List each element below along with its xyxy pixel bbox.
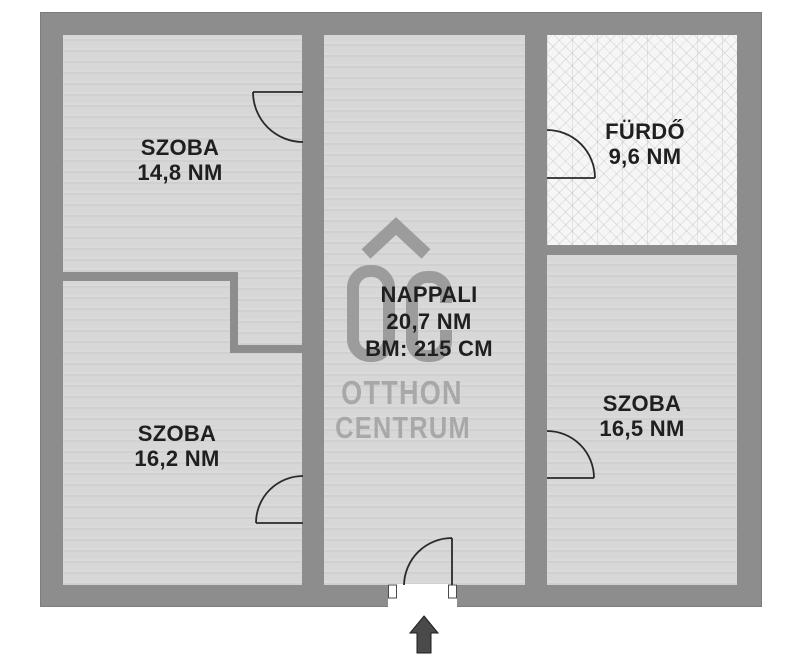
room-area: 20,7 NM — [365, 308, 493, 335]
room-label-szoba-16-2: SZOBA 16,2 NM — [134, 421, 219, 471]
room-area: 16,5 NM — [599, 416, 684, 441]
room-label-nappali: NAPPALI 20,7 NM BM: 215 CM — [365, 281, 493, 362]
room-name: SZOBA — [599, 391, 684, 416]
door-arc-furdo — [547, 130, 595, 178]
entrance-arrow-icon — [410, 616, 438, 653]
room-ceiling-height: BM: 215 CM — [365, 335, 493, 362]
floorplan-page: OTTHON CENTRUM SZOBA 14,8 NM SZOBA 16,2 … — [0, 0, 804, 671]
door-arc-szoba-14-8 — [253, 92, 303, 142]
room-name: SZOBA — [134, 421, 219, 446]
room-area: 9,6 NM — [605, 144, 685, 169]
door-arc-entrance — [404, 538, 452, 585]
watermark-brand-line2: CENTRUM — [335, 412, 471, 443]
entrance-opening — [388, 584, 457, 608]
door-arc-szoba-16-2 — [256, 476, 303, 523]
watermark-brand-line1: OTTHON — [341, 376, 463, 409]
room-label-szoba-16-5: SZOBA 16,5 NM — [599, 391, 684, 441]
entrance-jamb-left — [389, 585, 397, 598]
room-label-furdo: FÜRDŐ 9,6 NM — [605, 119, 685, 169]
door-arc-szoba-16-5 — [547, 431, 594, 478]
room-name: NAPPALI — [365, 281, 493, 308]
room-area: 16,2 NM — [134, 446, 219, 471]
room-name: FÜRDŐ — [605, 119, 685, 144]
room-area: 14,8 NM — [137, 160, 222, 185]
room-label-szoba-14-8: SZOBA 14,8 NM — [137, 135, 222, 185]
logo-roof-chevron-icon — [366, 226, 426, 254]
room-name: SZOBA — [137, 135, 222, 160]
entrance-jamb-right — [449, 585, 457, 598]
